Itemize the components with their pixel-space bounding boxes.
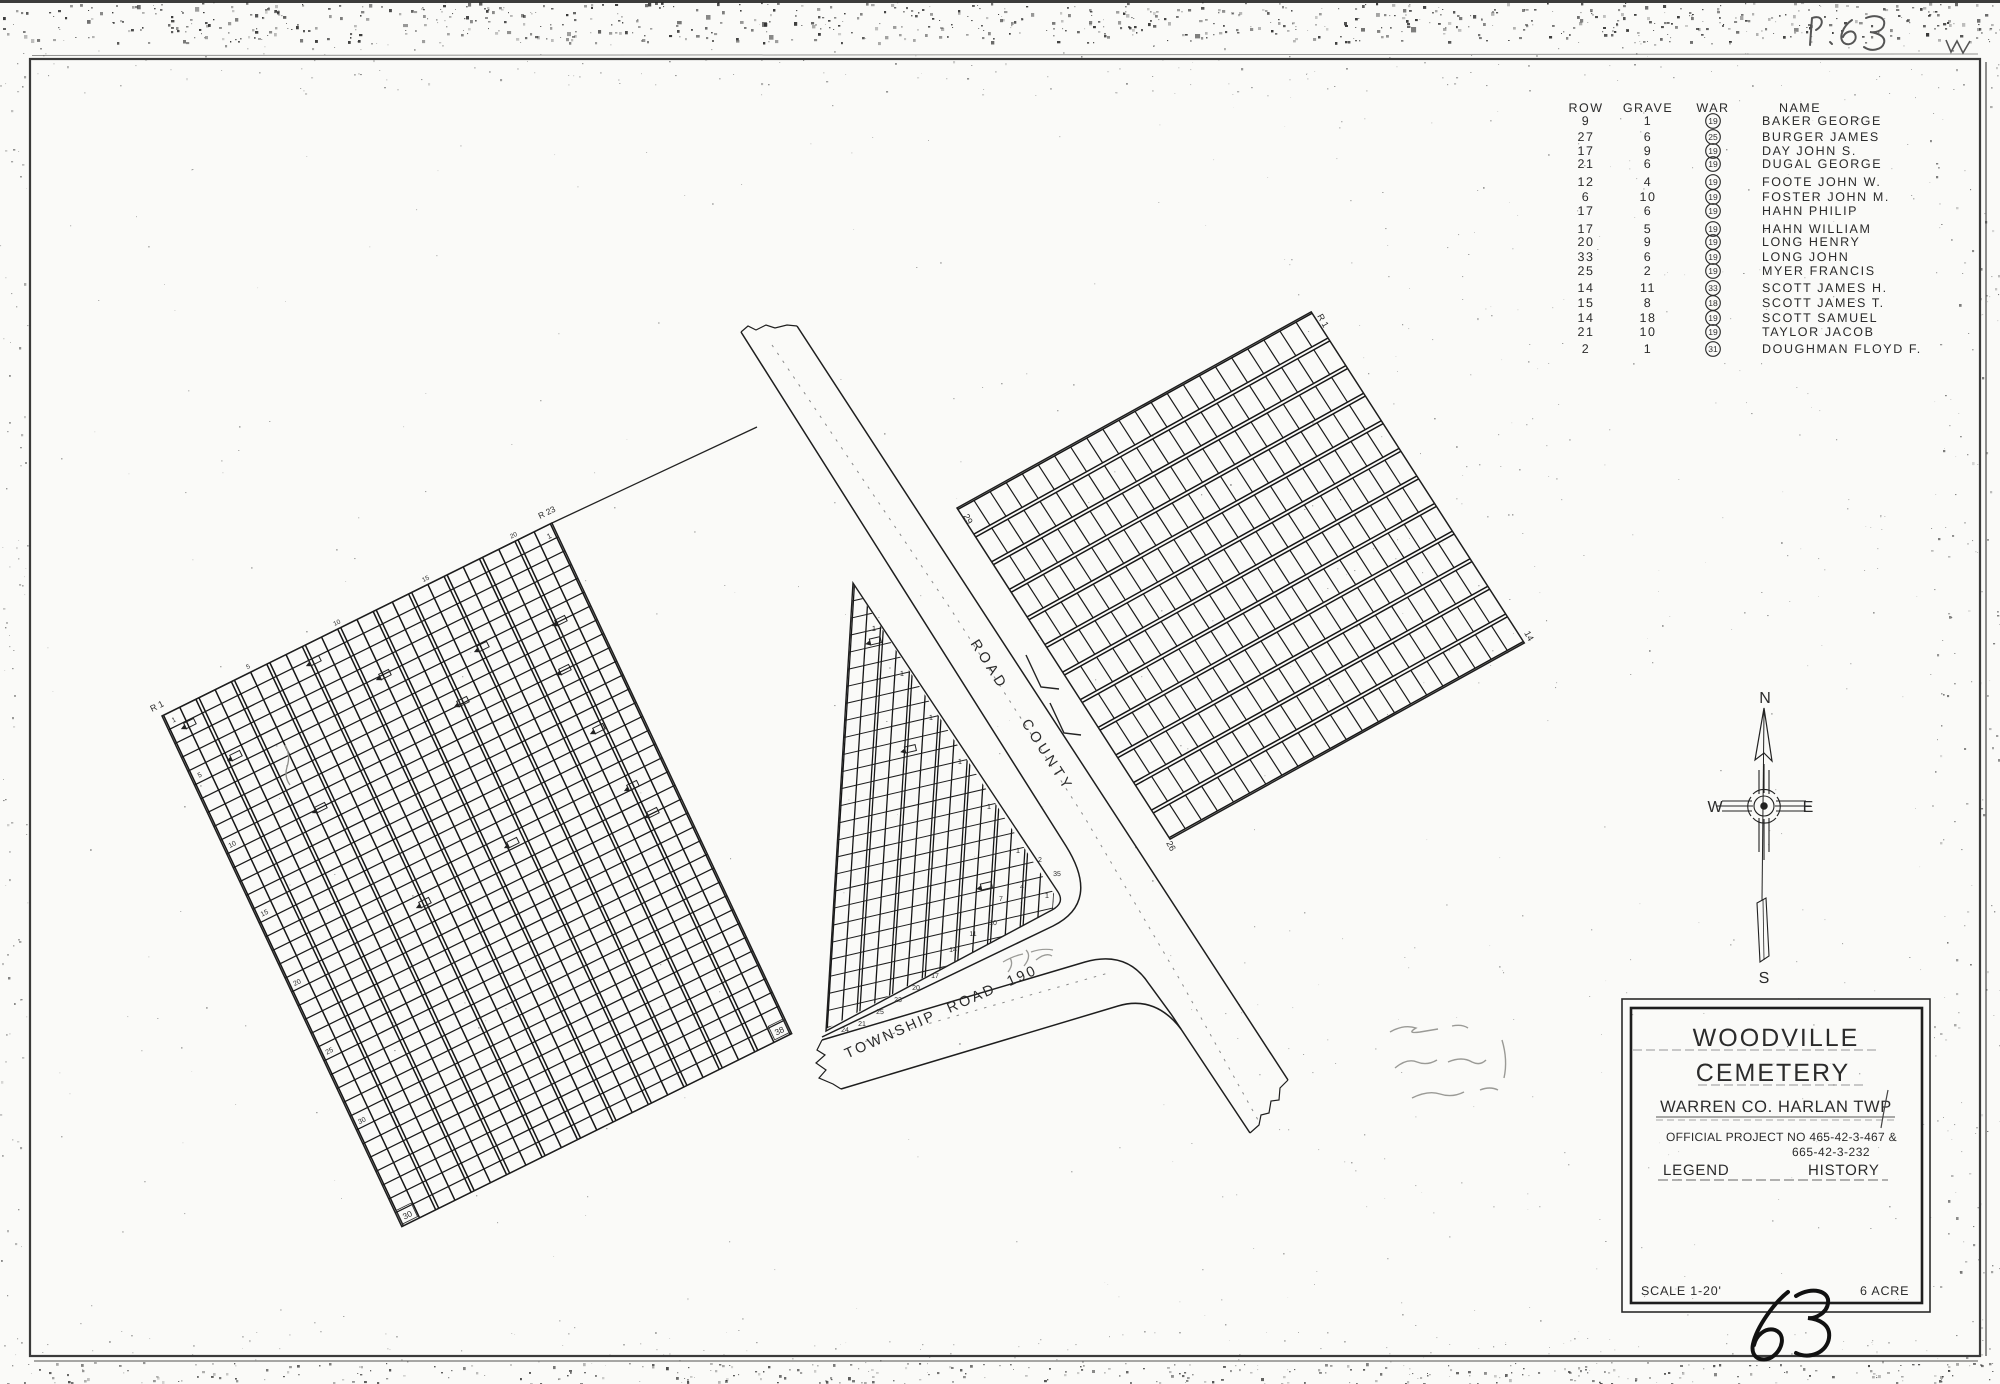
svg-text:S: S <box>1759 970 1770 987</box>
svg-text:19: 19 <box>1708 252 1718 262</box>
svg-text:19: 19 <box>1708 116 1718 126</box>
svg-text:SCALE 1-20': SCALE 1-20' <box>1641 1284 1722 1298</box>
svg-text:6: 6 <box>1644 157 1652 171</box>
svg-text:25: 25 <box>1708 132 1718 142</box>
svg-text:27: 27 <box>1578 130 1595 144</box>
svg-text:665-42-3-232: 665-42-3-232 <box>1792 1145 1870 1159</box>
svg-text:33: 33 <box>1578 250 1595 264</box>
svg-text:FOSTER JOHN M.: FOSTER JOHN M. <box>1762 190 1890 204</box>
svg-text:8: 8 <box>1644 296 1652 310</box>
svg-text:9: 9 <box>1582 114 1590 128</box>
svg-text:14: 14 <box>949 947 957 954</box>
svg-text:WARREN CO. HARLAN TWP: WARREN CO. HARLAN TWP <box>1660 1098 1892 1116</box>
svg-text:N: N <box>1759 690 1771 707</box>
svg-text:19: 19 <box>1708 313 1718 323</box>
svg-text:FOOTE JOHN W.: FOOTE JOHN W. <box>1762 175 1881 189</box>
svg-text:CEMETERY: CEMETERY <box>1696 1059 1850 1087</box>
svg-text:35: 35 <box>1053 871 1061 878</box>
svg-text:6 ACRE: 6 ACRE <box>1860 1284 1909 1298</box>
svg-text:1: 1 <box>929 713 933 722</box>
svg-text:17: 17 <box>1578 222 1595 236</box>
svg-text:19: 19 <box>1708 224 1718 234</box>
svg-text:21: 21 <box>1578 325 1595 339</box>
svg-text:19: 19 <box>1708 192 1718 202</box>
svg-text:12: 12 <box>1578 175 1595 189</box>
svg-text:BURGER JAMES: BURGER JAMES <box>1762 130 1880 144</box>
svg-text:15: 15 <box>1578 296 1595 310</box>
svg-text:19: 19 <box>1708 146 1718 156</box>
svg-text:33: 33 <box>1708 283 1718 293</box>
svg-text:DUGAL GEORGE: DUGAL GEORGE <box>1762 157 1882 171</box>
svg-text:SCOTT JAMES H.: SCOTT JAMES H. <box>1762 281 1888 295</box>
svg-text:25: 25 <box>1578 264 1595 278</box>
svg-text:1: 1 <box>987 802 991 811</box>
svg-text:10: 10 <box>1640 190 1657 204</box>
svg-text:6: 6 <box>1644 130 1652 144</box>
svg-text:W: W <box>1707 799 1723 816</box>
svg-text:2: 2 <box>1038 857 1042 864</box>
svg-text:TAYLOR JACOB: TAYLOR JACOB <box>1762 325 1875 339</box>
svg-text:SCOTT JAMES T.: SCOTT JAMES T. <box>1762 296 1885 310</box>
svg-text:2: 2 <box>1644 264 1652 278</box>
svg-text:BAKER GEORGE: BAKER GEORGE <box>1762 114 1882 128</box>
svg-text:WAR: WAR <box>1696 101 1729 115</box>
svg-text:4: 4 <box>1644 175 1652 189</box>
svg-text:DAY JOHN S.: DAY JOHN S. <box>1762 144 1857 158</box>
svg-text:31: 31 <box>1708 344 1718 354</box>
svg-text:MYER FRANCIS: MYER FRANCIS <box>1762 264 1876 278</box>
svg-text:9: 9 <box>1644 235 1652 249</box>
svg-text:1: 1 <box>1045 891 1049 900</box>
svg-text:21: 21 <box>858 1021 866 1028</box>
svg-text:1: 1 <box>872 624 876 633</box>
svg-text:24: 24 <box>841 1027 849 1034</box>
svg-text:GRAVE: GRAVE <box>1623 101 1673 115</box>
svg-text:11: 11 <box>969 931 976 938</box>
svg-text:20: 20 <box>1578 235 1595 249</box>
svg-text:19: 19 <box>1708 206 1718 216</box>
svg-text:17: 17 <box>1578 144 1595 158</box>
svg-text:SCOTT SAMUEL: SCOTT SAMUEL <box>1762 311 1878 325</box>
svg-text:2: 2 <box>1582 342 1590 356</box>
svg-text:10: 10 <box>1640 325 1657 339</box>
svg-text:21: 21 <box>1578 157 1595 171</box>
svg-text:WOODVILLE: WOODVILLE <box>1693 1024 1860 1052</box>
svg-text:19: 19 <box>1708 266 1718 276</box>
svg-text:6: 6 <box>1644 204 1652 218</box>
svg-text:9: 9 <box>1644 144 1652 158</box>
svg-text:6: 6 <box>1644 250 1652 264</box>
svg-text:4: 4 <box>1020 884 1024 891</box>
svg-text:1: 1 <box>900 669 904 678</box>
svg-text:10: 10 <box>989 920 997 927</box>
svg-text:LEGEND: LEGEND <box>1663 1162 1730 1179</box>
svg-text:HAHN PHILIP: HAHN PHILIP <box>1762 204 1858 218</box>
svg-text:HAHN WILLIAM: HAHN WILLIAM <box>1762 222 1872 236</box>
svg-text:E: E <box>1803 799 1814 816</box>
svg-text:DOUGHMAN FLOYD F.: DOUGHMAN FLOYD F. <box>1762 342 1922 356</box>
svg-text:19: 19 <box>1708 177 1718 187</box>
svg-text:18: 18 <box>1640 311 1657 325</box>
svg-text:14: 14 <box>1578 311 1595 325</box>
svg-text:HISTORY: HISTORY <box>1808 1162 1880 1179</box>
svg-text:19: 19 <box>1708 327 1718 337</box>
svg-text:OFFICIAL PROJECT NO 465-42-3: OFFICIAL PROJECT NO 465-42-3-467 & <box>1666 1130 1897 1144</box>
svg-text:7: 7 <box>999 896 1003 903</box>
svg-text:23: 23 <box>894 997 902 1004</box>
svg-text:17: 17 <box>1578 204 1595 218</box>
svg-text:20: 20 <box>912 985 920 992</box>
svg-text:1: 1 <box>1644 114 1652 128</box>
svg-text:18: 18 <box>1708 298 1718 308</box>
svg-text:1: 1 <box>958 757 962 766</box>
svg-text:LONG HENRY: LONG HENRY <box>1762 235 1860 249</box>
svg-text:19: 19 <box>1708 159 1718 169</box>
svg-text:ROW: ROW <box>1568 101 1603 115</box>
svg-text:14: 14 <box>1578 281 1595 295</box>
svg-text:17: 17 <box>931 973 939 980</box>
svg-text:1: 1 <box>1016 846 1020 855</box>
svg-text:6: 6 <box>1582 190 1590 204</box>
svg-text:1: 1 <box>1644 342 1652 356</box>
svg-text:NAME: NAME <box>1779 101 1821 115</box>
svg-text:25: 25 <box>876 1009 884 1016</box>
svg-text:LONG JOHN: LONG JOHN <box>1762 250 1849 264</box>
svg-text:5: 5 <box>1644 222 1652 236</box>
svg-text:19: 19 <box>1708 237 1718 247</box>
svg-text:11: 11 <box>1640 281 1656 295</box>
